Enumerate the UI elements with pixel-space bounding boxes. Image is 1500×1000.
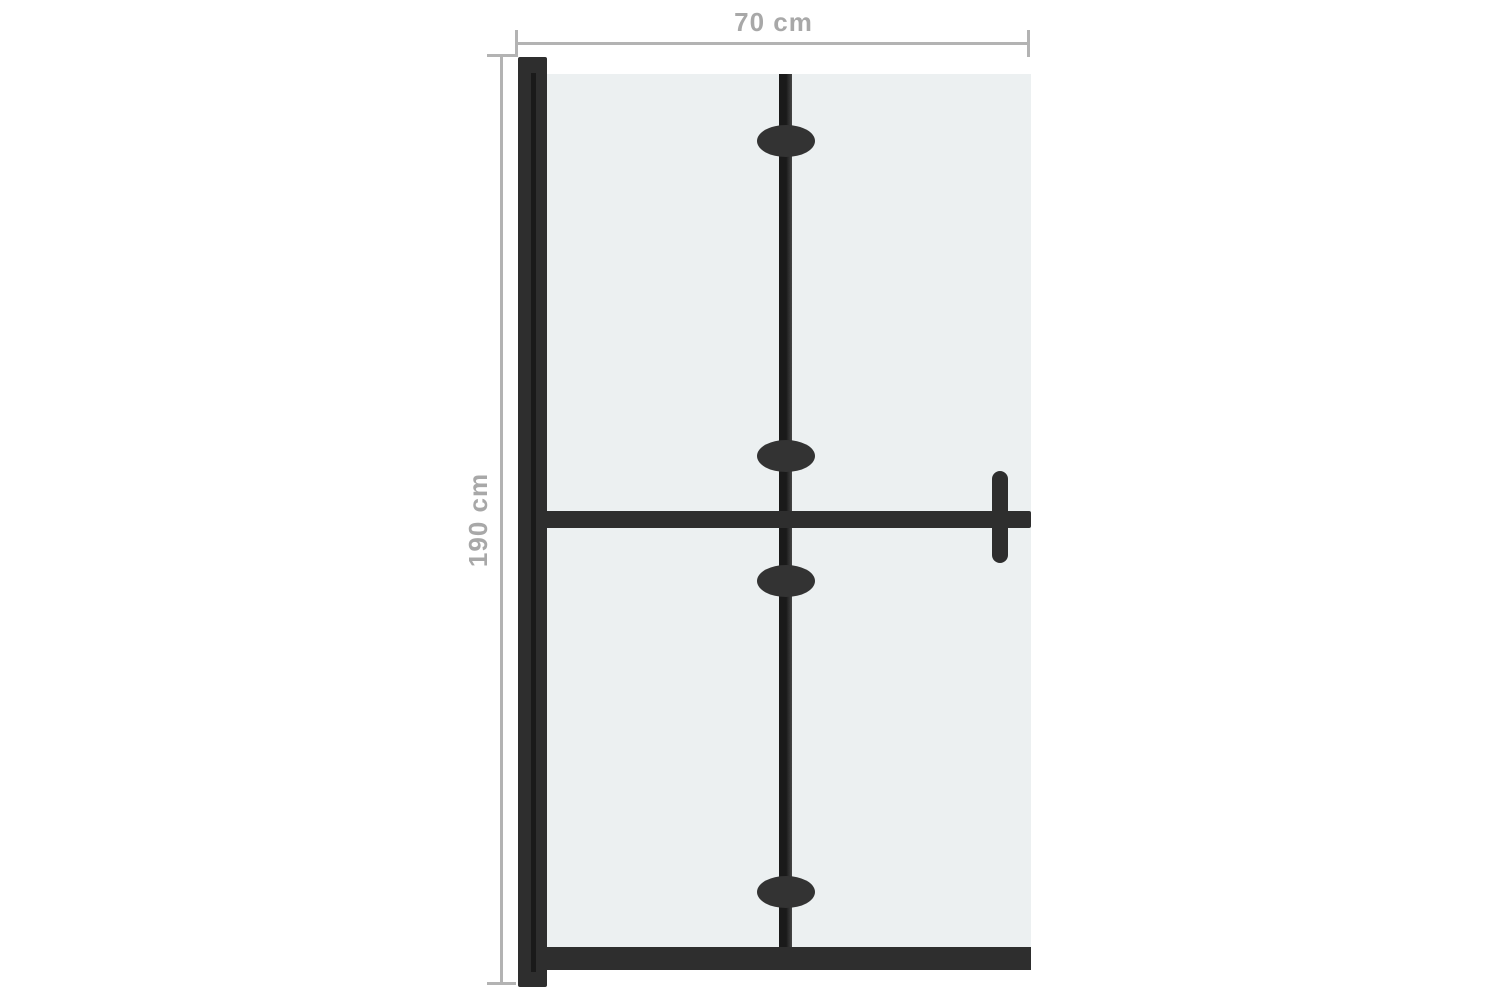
wall-bracket [992, 471, 1008, 563]
hinge-oval-upper-middle [757, 440, 815, 472]
hinge-oval-top [757, 125, 815, 157]
height-dimension-line [500, 54, 503, 985]
hinge-oval-lower-middle [757, 565, 815, 597]
height-dimension-tick-bottom [487, 982, 516, 985]
shower-wall-dimension-diagram: 70 cm 190 cm [0, 0, 1500, 1000]
width-dimension-line [516, 42, 1029, 45]
height-dimension-tick-top [487, 54, 517, 57]
stabilizer-bar [543, 511, 1031, 528]
height-dimension-label: 190 cm [463, 460, 493, 580]
bottom-frame-bar [545, 947, 1031, 970]
hinge-oval-bottom [757, 876, 815, 908]
width-dimension-label: 70 cm [517, 7, 1030, 37]
wall-profile-groove [531, 73, 536, 972]
